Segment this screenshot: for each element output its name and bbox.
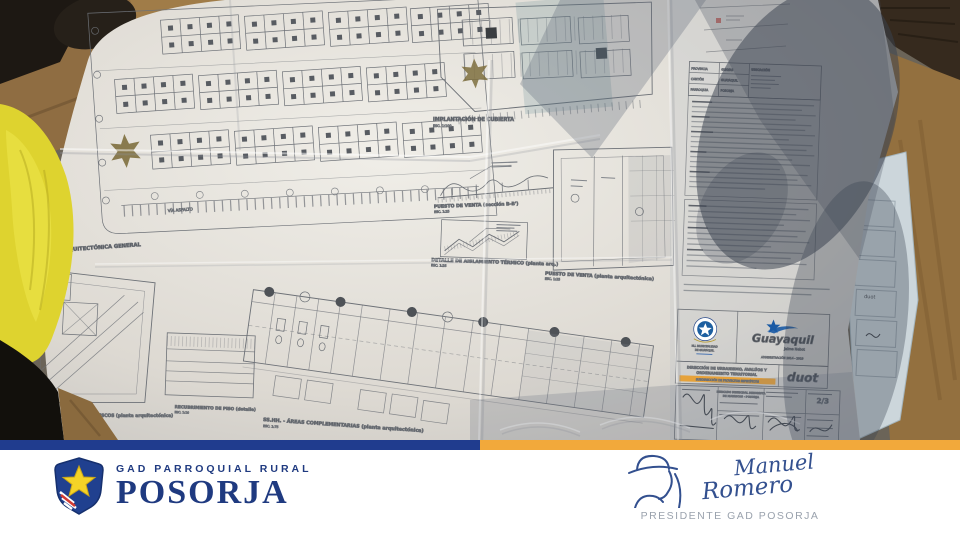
loc-row-parroquia: PARROQUIA xyxy=(690,87,709,92)
plan-roof-label: IMPLANTACIÓN DE CUBIERTA xyxy=(433,116,514,123)
plan-roof-scale: ESC. 1:100 xyxy=(433,124,452,128)
brand-name: POSORJA xyxy=(116,476,312,510)
plan-floor-scale: ESC. 1:10 xyxy=(174,410,189,415)
bar-navy xyxy=(0,440,480,450)
signature-last-name: Romero xyxy=(701,471,794,505)
brand-subtitle: GAD PARROQUIAL RURAL xyxy=(116,463,312,475)
president-signature: Manuel Romero PRESIDENTE GAD POSORJA xyxy=(600,452,860,522)
man-with-hat-icon xyxy=(623,452,687,508)
plan-thermal-scale: ESC. 1:25 xyxy=(431,263,447,268)
posorja-brand: GAD PARROQUIAL RURAL POSORJA xyxy=(52,456,312,516)
bar-gold xyxy=(480,440,960,450)
photo-of-blueprint: duot VÍA ASFALTO PLANT xyxy=(0,0,960,440)
plan-stall-scale: ESC. 1:25 xyxy=(545,277,561,282)
loc-row-provincia: PROVINCIA xyxy=(691,66,708,71)
posorja-shield-logo xyxy=(52,456,106,516)
plan-section-scale: ESC. 1:25 xyxy=(434,209,450,214)
seal-caption-2: DE GUAYAQUIL xyxy=(695,348,715,353)
loc-row-canton: CANTÓN xyxy=(691,76,704,81)
signature-title: PRESIDENTE GAD POSORJA xyxy=(600,510,860,522)
footer: GAD PARROQUIAL RURAL POSORJA Manuel Rome… xyxy=(0,450,960,533)
poster: duot VÍA ASFALTO PLANT xyxy=(0,0,960,533)
signature-name: Manuel Romero xyxy=(685,446,839,511)
